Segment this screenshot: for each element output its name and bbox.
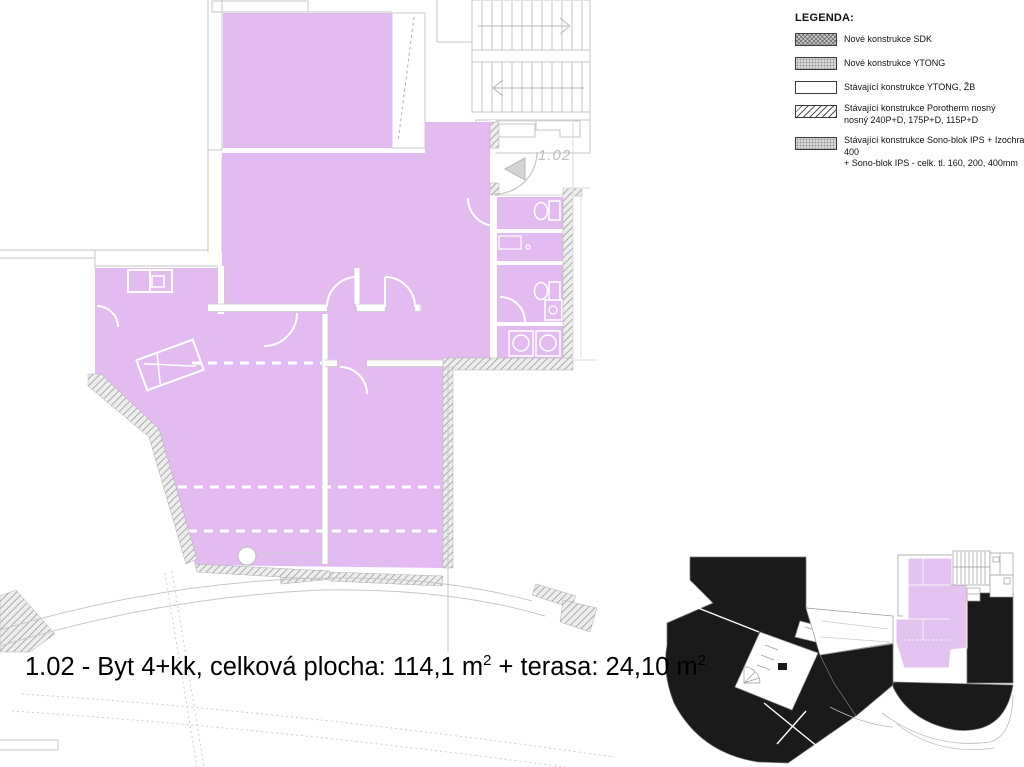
staircase — [472, 0, 590, 137]
stair-direction-arrows — [478, 18, 584, 96]
legend-swatch-ytong-new — [795, 57, 837, 70]
floorplan-page: LEGENDA: Nové konstrukce SDK Nové konstr… — [0, 0, 1024, 767]
legend-item-ytong-new: Nové konstrukce YTONG — [795, 57, 1024, 70]
legend-title: LEGENDA: — [795, 12, 1024, 24]
keyplan-overview — [660, 545, 1020, 767]
legend-item-sdk: Nové konstrukce SDK — [795, 33, 1024, 46]
main-floorplan-drawing — [0, 0, 660, 767]
legend-label-ytong-new: Nové konstrukce YTONG — [844, 58, 945, 70]
legend-label-sono-blok: Stávající konstrukce Sono-blok IPS + Izo… — [844, 135, 1024, 170]
legend: LEGENDA: Nové konstrukce SDK Nové konstr… — [795, 12, 1024, 181]
legend-item-sono-blok: Stávající konstrukce Sono-blok IPS + Izo… — [795, 137, 1024, 170]
legend-label-porotherm: Stávající konstrukce Porotherm nosnýnosn… — [844, 103, 996, 126]
caption-sup-1: 2 — [483, 652, 491, 669]
legend-item-porotherm: Stávající konstrukce Porotherm nosnýnosn… — [795, 105, 1024, 126]
legend-label-ytong-existing: Stávající konstrukce YTONG, ŽB — [844, 82, 975, 94]
legend-swatch-sono-blok — [795, 137, 837, 150]
shaft-sliver — [392, 13, 425, 148]
column — [238, 547, 256, 565]
area-caption: 1.02 - Byt 4+kk, celková plocha: 114,1 m… — [25, 653, 706, 682]
caption-text-1: 1.02 - Byt 4+kk, celková plocha: 114,1 m — [25, 653, 483, 681]
entrance-door — [495, 152, 537, 194]
keyplan-staircase — [953, 551, 990, 585]
legend-swatch-porotherm — [795, 105, 837, 118]
legend-label-sdk: Nové konstrukce SDK — [844, 34, 932, 46]
legend-item-ytong-existing: Stávající konstrukce YTONG, ŽB — [795, 81, 1024, 94]
legend-swatch-sdk — [795, 33, 837, 46]
caption-text-2: + terasa: 24,10 m — [491, 653, 697, 681]
legend-swatch-ytong-existing — [795, 81, 837, 94]
unit-number-label: 1.02 — [538, 147, 571, 164]
caption-sup-2: 2 — [698, 652, 706, 669]
